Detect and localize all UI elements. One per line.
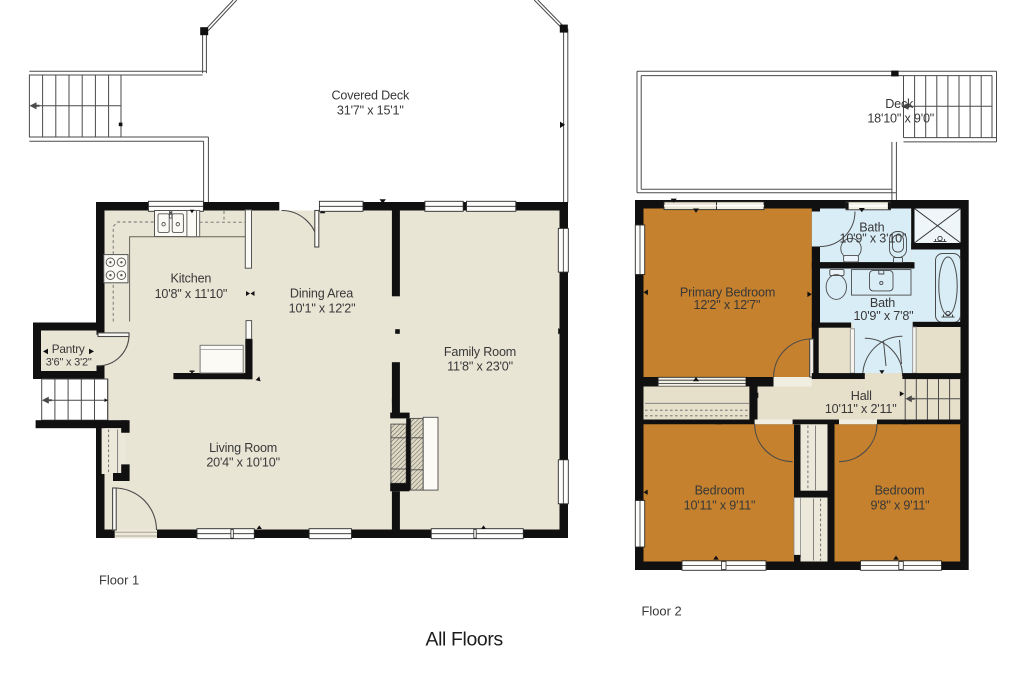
- svg-text:18'10" x 9'0": 18'10" x 9'0": [867, 111, 934, 125]
- svg-text:Floor 2: Floor 2: [642, 603, 682, 618]
- svg-text:Bedroom: Bedroom: [695, 484, 745, 498]
- svg-text:10'9" x 7'8": 10'9" x 7'8": [854, 309, 914, 323]
- svg-text:Family Room: Family Room: [444, 345, 516, 359]
- svg-text:3'6" x 3'2": 3'6" x 3'2": [46, 357, 92, 369]
- svg-text:Floor 1: Floor 1: [99, 572, 139, 587]
- svg-text:10'8" x 11'10": 10'8" x 11'10": [155, 287, 228, 301]
- svg-text:All Floors: All Floors: [426, 629, 503, 651]
- svg-text:Bath: Bath: [870, 296, 895, 310]
- svg-text:Pantry: Pantry: [52, 342, 85, 356]
- svg-text:10'9" x 3'10": 10'9" x 3'10": [840, 231, 907, 245]
- svg-text:Kitchen: Kitchen: [171, 272, 212, 286]
- svg-text:Bedroom: Bedroom: [875, 484, 925, 498]
- svg-text:11'8" x 23'0": 11'8" x 23'0": [447, 359, 513, 373]
- svg-text:Hall: Hall: [851, 389, 872, 403]
- svg-text:10'1" x 12'2": 10'1" x 12'2": [289, 301, 356, 315]
- svg-text:Covered Deck: Covered Deck: [331, 88, 410, 102]
- svg-text:20'4" x 10'10": 20'4" x 10'10": [206, 455, 280, 469]
- svg-text:31'7" x 15'1": 31'7" x 15'1": [337, 104, 404, 118]
- svg-text:9'8" x 9'11": 9'8" x 9'11": [871, 499, 930, 513]
- svg-text:Living Room: Living Room: [209, 441, 277, 455]
- svg-text:10'11" x 2'11": 10'11" x 2'11": [825, 402, 897, 416]
- svg-text:12'2" x 12'7": 12'2" x 12'7": [694, 298, 761, 312]
- svg-text:Deck: Deck: [885, 97, 914, 111]
- svg-text:Dining Area: Dining Area: [290, 287, 353, 301]
- svg-text:10'11" x 9'11": 10'11" x 9'11": [684, 499, 756, 513]
